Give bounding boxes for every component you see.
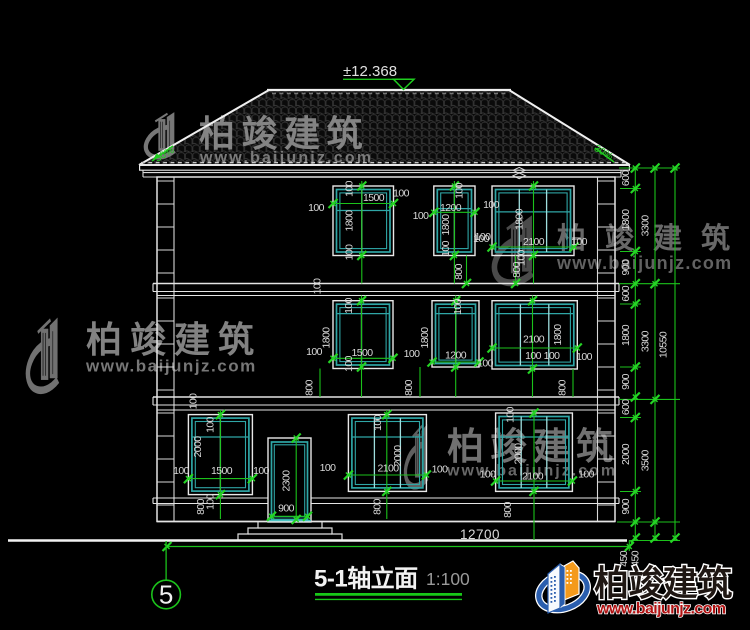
svg-text:100: 100 xyxy=(344,244,356,260)
svg-text:800: 800 xyxy=(511,261,523,277)
svg-text:800: 800 xyxy=(195,498,207,514)
svg-text:100: 100 xyxy=(253,465,269,477)
svg-text:www.baijunjz.com: www.baijunjz.com xyxy=(556,253,732,273)
svg-text:2000: 2000 xyxy=(513,443,525,465)
svg-text:2100: 2100 xyxy=(523,334,545,346)
svg-text:100: 100 xyxy=(473,233,489,245)
svg-text:1800: 1800 xyxy=(344,210,356,232)
svg-text:1200: 1200 xyxy=(440,202,462,214)
svg-text:1800: 1800 xyxy=(419,327,431,349)
svg-text:100: 100 xyxy=(571,236,587,248)
svg-text:900: 900 xyxy=(620,373,632,389)
svg-text:100: 100 xyxy=(404,348,420,360)
svg-text:1800: 1800 xyxy=(620,209,632,231)
svg-text:100: 100 xyxy=(432,464,448,476)
svg-text:100: 100 xyxy=(576,351,592,363)
svg-text:1800: 1800 xyxy=(440,214,452,236)
svg-text:www.baijunjz.com: www.baijunjz.com xyxy=(199,150,373,167)
svg-text:5: 5 xyxy=(159,580,173,610)
svg-text:100: 100 xyxy=(344,180,356,196)
svg-text:柏竣建筑: 柏竣建筑 xyxy=(199,113,369,154)
svg-text:1200: 1200 xyxy=(445,350,467,362)
svg-text:100: 100 xyxy=(372,414,384,430)
svg-text:100: 100 xyxy=(312,278,324,294)
svg-text:100: 100 xyxy=(452,298,464,314)
svg-text:800: 800 xyxy=(372,498,384,514)
svg-text:柏竣建筑: 柏竣建筑 xyxy=(594,564,732,604)
svg-text:600: 600 xyxy=(620,170,632,186)
svg-text:800: 800 xyxy=(403,379,415,395)
svg-text:800: 800 xyxy=(502,501,514,517)
svg-text:1:100: 1:100 xyxy=(426,569,470,589)
svg-text:10550: 10550 xyxy=(658,331,670,358)
svg-text:100: 100 xyxy=(205,416,217,432)
svg-text:100: 100 xyxy=(188,393,200,409)
svg-text:100: 100 xyxy=(343,355,355,371)
svg-text:800: 800 xyxy=(453,263,465,279)
svg-text:100: 100 xyxy=(483,199,499,211)
svg-text:3300: 3300 xyxy=(640,330,652,352)
svg-text:2100: 2100 xyxy=(523,236,545,248)
svg-text:100: 100 xyxy=(454,182,466,198)
svg-text:www.baijunjz.com: www.baijunjz.com xyxy=(596,601,726,618)
svg-text:100: 100 xyxy=(480,469,496,481)
svg-text:100: 100 xyxy=(343,297,355,313)
svg-text:800: 800 xyxy=(557,379,569,395)
svg-text:1800: 1800 xyxy=(552,324,564,346)
svg-text:600: 600 xyxy=(620,285,632,301)
svg-text:100: 100 xyxy=(544,350,560,362)
svg-text:900: 900 xyxy=(278,503,294,515)
svg-text:100: 100 xyxy=(505,406,517,422)
svg-text:±12.368: ±12.368 xyxy=(343,63,397,80)
svg-text:100: 100 xyxy=(393,188,409,200)
svg-text:3500: 3500 xyxy=(640,449,652,471)
svg-text:900: 900 xyxy=(620,259,632,275)
svg-text:100: 100 xyxy=(173,465,189,477)
svg-text:www.baijunjz.com: www.baijunjz.com xyxy=(85,357,257,376)
svg-text:900: 900 xyxy=(620,498,632,514)
svg-text:2300: 2300 xyxy=(281,470,293,492)
svg-text:800: 800 xyxy=(304,379,316,395)
svg-text:1500: 1500 xyxy=(211,465,233,477)
svg-text:12700: 12700 xyxy=(460,527,500,542)
svg-text:100: 100 xyxy=(413,210,429,222)
svg-text:600: 600 xyxy=(620,399,632,415)
svg-text:100: 100 xyxy=(320,462,336,474)
svg-text:1800: 1800 xyxy=(620,324,632,346)
svg-text:1500: 1500 xyxy=(363,192,385,204)
svg-text:2000: 2000 xyxy=(392,445,404,467)
svg-text:2100: 2100 xyxy=(522,471,544,483)
svg-text:100: 100 xyxy=(477,358,493,370)
svg-text:100: 100 xyxy=(308,202,324,214)
svg-text:柏竣建筑: 柏竣建筑 xyxy=(447,425,619,467)
svg-text:1800: 1800 xyxy=(321,327,333,349)
svg-text:2000: 2000 xyxy=(620,443,632,465)
svg-text:100: 100 xyxy=(440,240,452,256)
svg-text:100: 100 xyxy=(578,469,594,481)
svg-text:5-1轴立面: 5-1轴立面 xyxy=(314,565,418,593)
svg-text:1800: 1800 xyxy=(513,208,525,230)
svg-text:100: 100 xyxy=(306,346,322,358)
svg-text:3300: 3300 xyxy=(640,215,652,237)
svg-text:100: 100 xyxy=(525,350,541,362)
svg-text:2000: 2000 xyxy=(192,436,204,458)
